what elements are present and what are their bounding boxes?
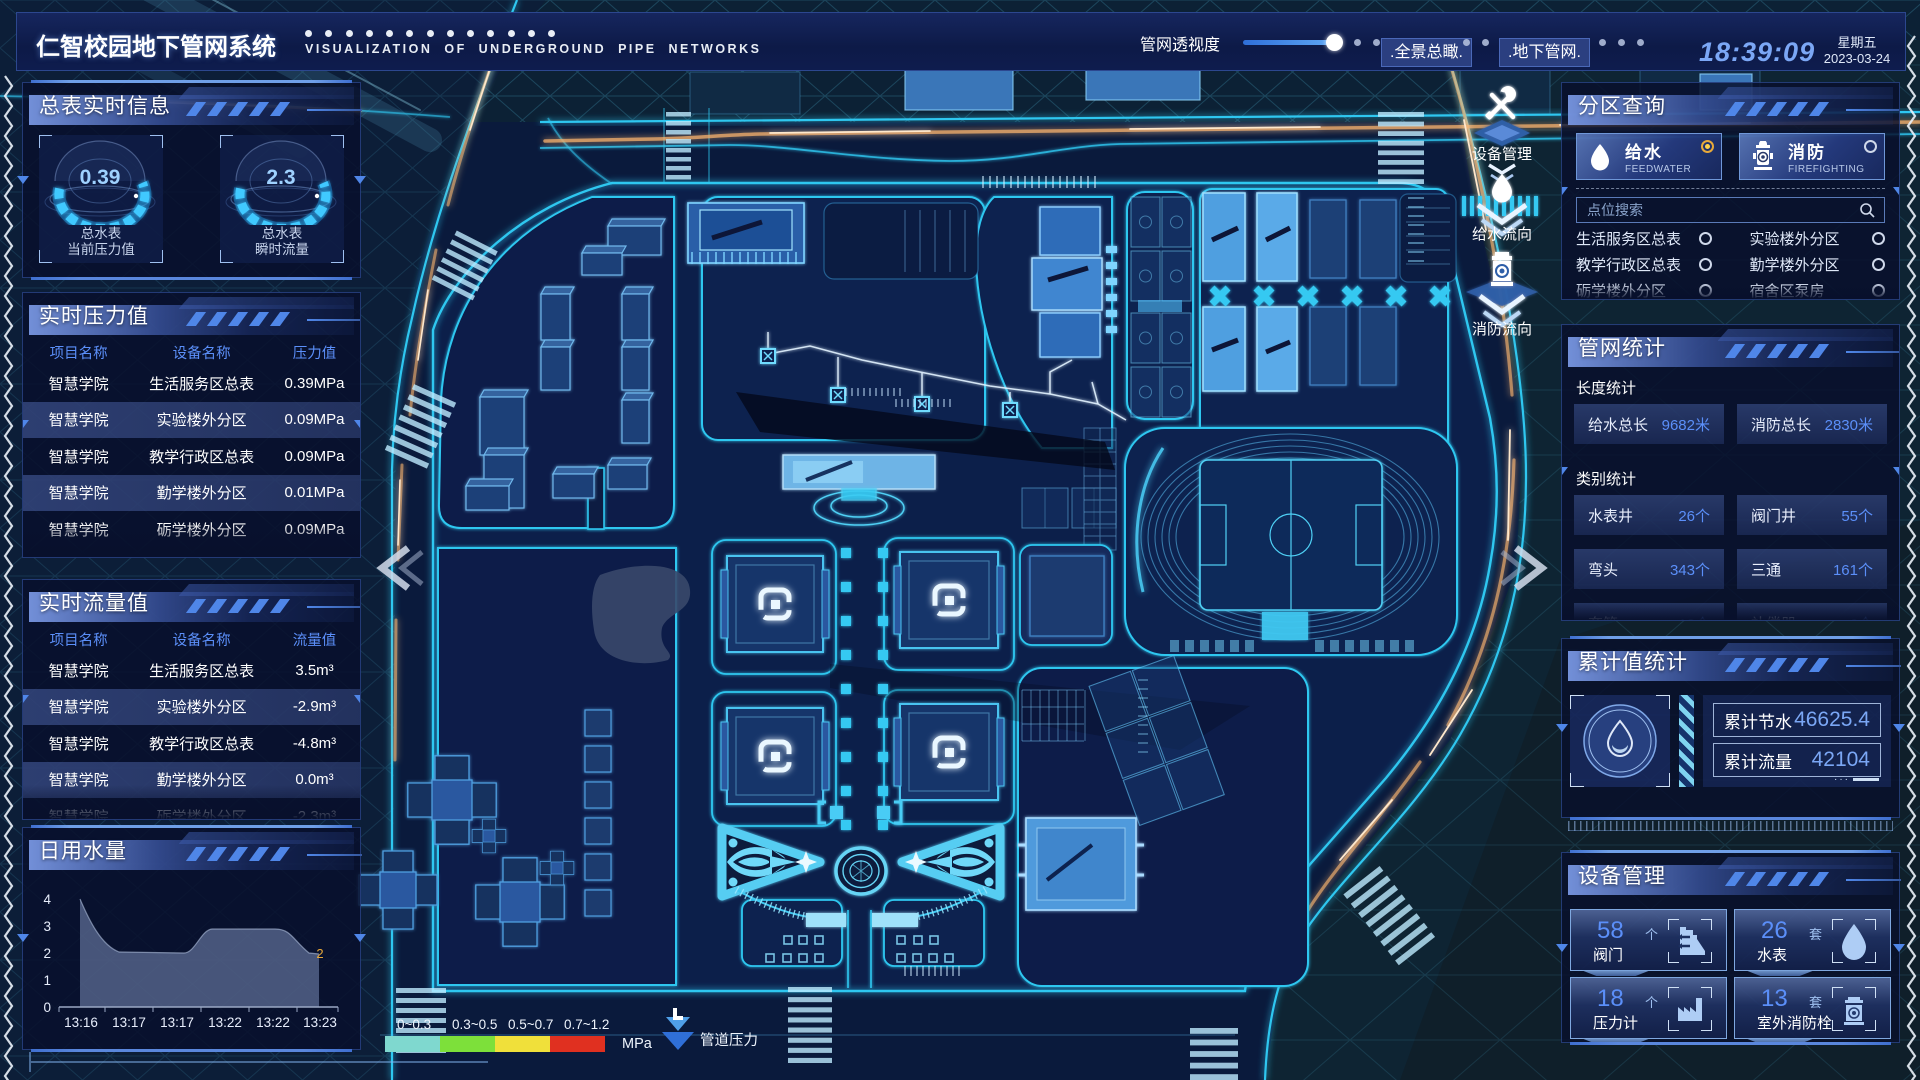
svg-text:4: 4: [43, 892, 51, 907]
svg-text:2.3: 2.3: [266, 166, 295, 189]
svg-text:0.7~1.2: 0.7~1.2: [564, 1017, 609, 1032]
svg-text:给水流向: 给水流向: [1472, 226, 1532, 243]
svg-text:0.5~0.7: 0.5~0.7: [508, 1017, 553, 1032]
svg-text:设备管理: 设备管理: [1472, 146, 1532, 163]
svg-text:13:17: 13:17: [112, 1015, 146, 1030]
svg-text:13:22: 13:22: [256, 1015, 290, 1030]
svg-text:0~0.3: 0~0.3: [397, 1017, 431, 1032]
svg-text:2: 2: [43, 946, 51, 961]
svg-text:13:23: 13:23: [303, 1015, 337, 1030]
svg-text:管道压力: 管道压力: [700, 1032, 758, 1049]
svg-text:0.39: 0.39: [80, 166, 121, 189]
svg-text:MPa: MPa: [622, 1036, 653, 1052]
svg-text:13:22: 13:22: [208, 1015, 242, 1030]
svg-text:2: 2: [316, 946, 323, 961]
svg-text:0.3~0.5: 0.3~0.5: [452, 1017, 497, 1032]
svg-text:0: 0: [43, 1000, 51, 1015]
svg-text:13:16: 13:16: [64, 1015, 98, 1030]
svg-text:13:17: 13:17: [160, 1015, 194, 1030]
svg-text:1: 1: [43, 973, 51, 988]
svg-text:3: 3: [43, 919, 51, 934]
svg-text:消防流向: 消防流向: [1472, 321, 1532, 338]
